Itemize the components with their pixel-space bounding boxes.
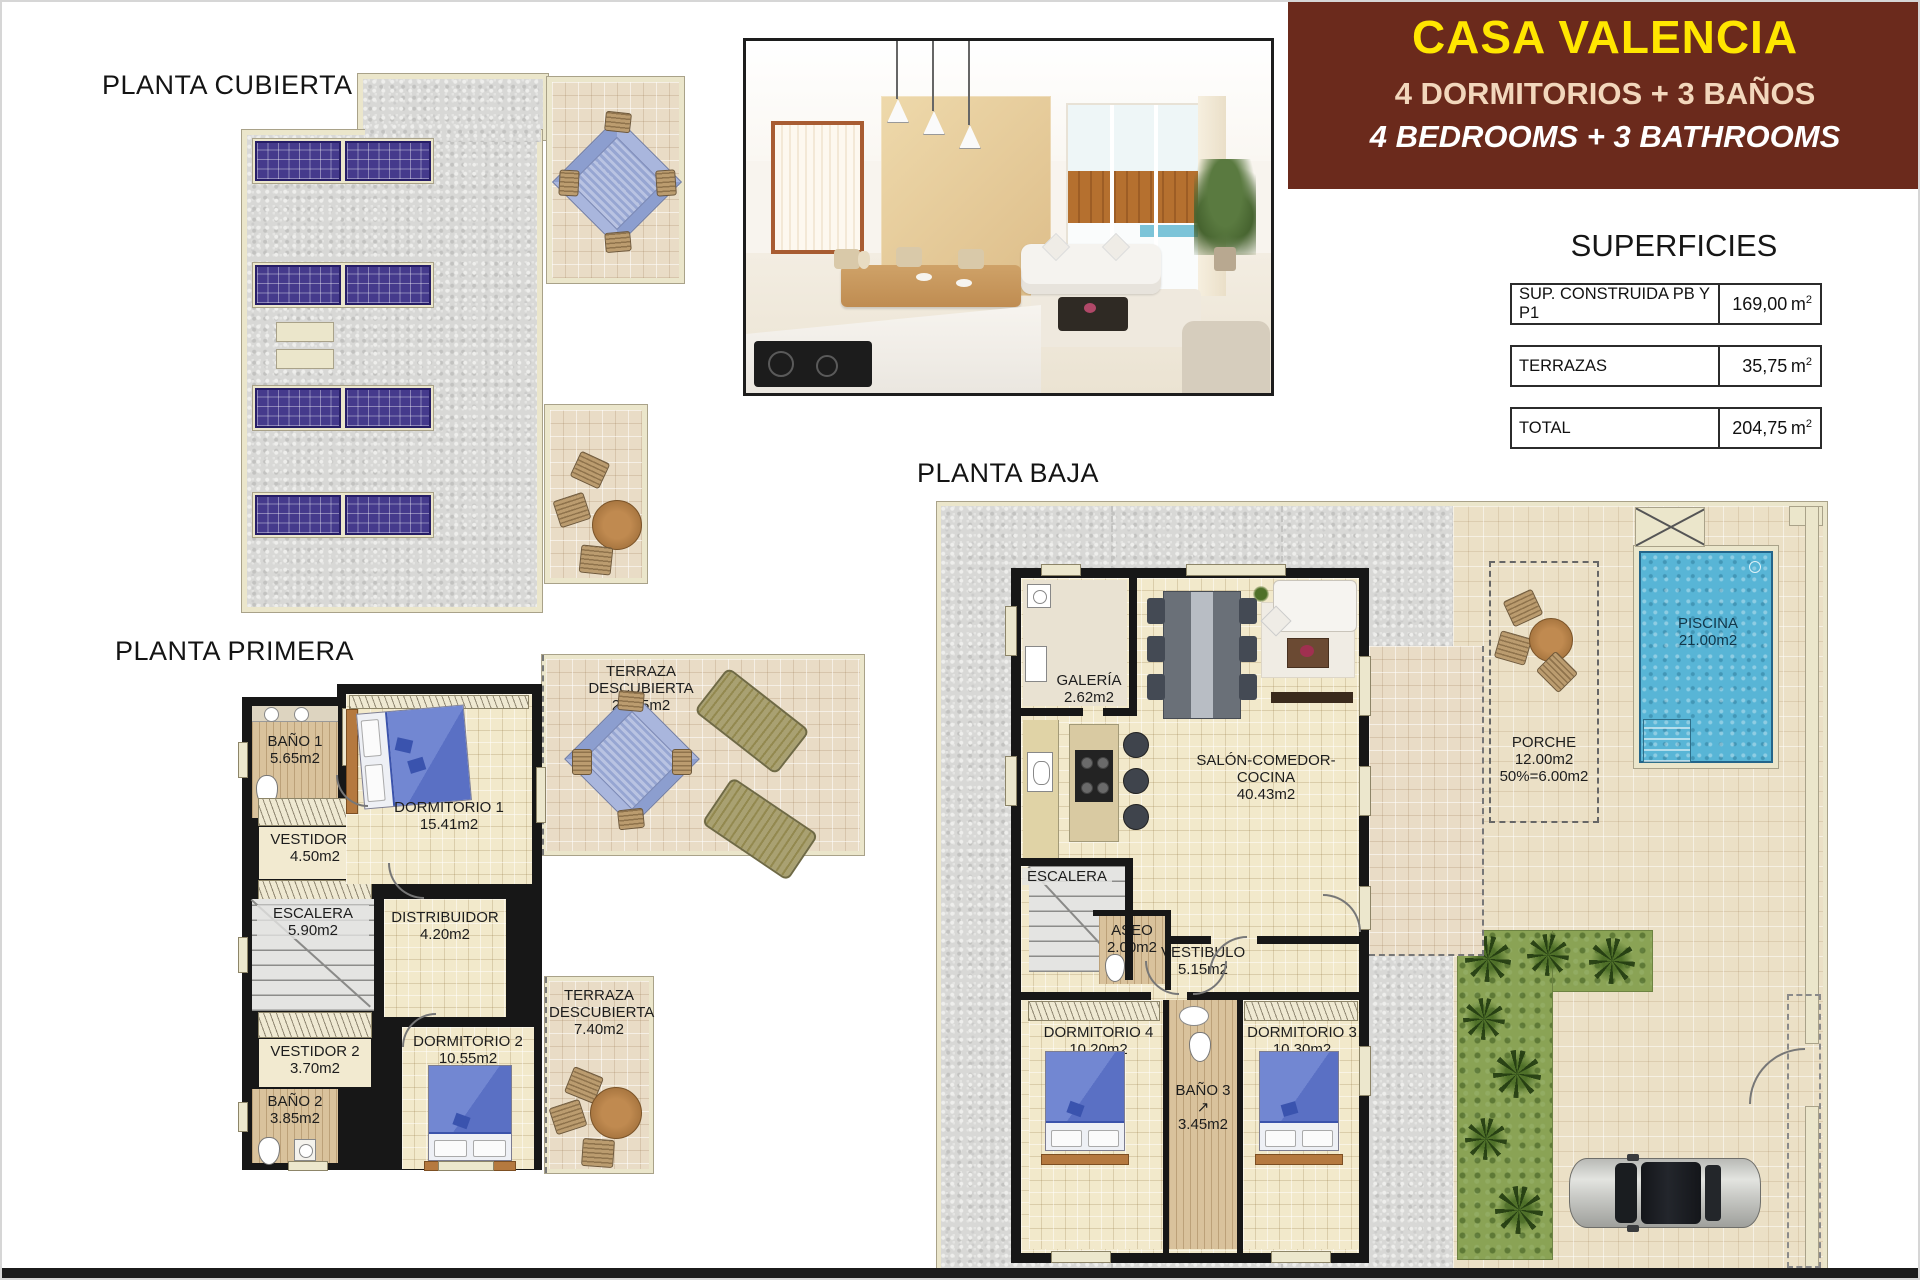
window-opening — [438, 1161, 494, 1171]
dining-chair — [1147, 636, 1165, 662]
double-bed — [356, 704, 472, 809]
round-table — [592, 500, 642, 550]
terrace-chair — [604, 231, 632, 253]
bottom-border-bar — [2, 1268, 1918, 1278]
wardrobe — [259, 1013, 371, 1037]
dining-chair — [896, 247, 922, 267]
pillow — [434, 1140, 467, 1157]
palm-plant — [1589, 938, 1635, 984]
solar-panel-row — [252, 385, 434, 431]
coffee-table — [1058, 297, 1128, 331]
sink-bowl — [1033, 761, 1050, 785]
area-unit: m2 — [1791, 356, 1812, 377]
plan-primera: TERRAZA DESCUBIERTA 28.35m2 TERRAZA DESC… — [232, 647, 872, 1179]
palm-plant — [1495, 1186, 1543, 1234]
area-value: 204,75 — [1732, 418, 1787, 439]
window-opening — [238, 937, 248, 973]
room-area: 2.62m2 — [1049, 689, 1129, 706]
washbasin — [1179, 1006, 1209, 1026]
solar-panel-row — [252, 492, 434, 538]
burner — [1081, 757, 1093, 769]
table-runner — [1191, 592, 1212, 718]
burner — [1097, 782, 1109, 794]
burner — [1097, 757, 1109, 769]
window-opening — [1041, 564, 1081, 576]
round-table — [590, 1087, 642, 1139]
dining-table — [1163, 591, 1241, 719]
room-label-escalera: ESCALERA 5.90m2 — [257, 905, 369, 939]
pillow — [1088, 1130, 1120, 1147]
superficies-title: SUPERFICIES — [1518, 228, 1830, 264]
room-area: 12.00m2 — [1491, 751, 1597, 768]
page-title: CASA VALENCIA — [1288, 10, 1920, 64]
room-name: DISTRIBUIDOR — [387, 909, 503, 926]
solar-panel-row — [252, 138, 434, 184]
terrace-chair — [572, 749, 592, 775]
roof-body — [242, 130, 542, 612]
boundary-wall — [1805, 506, 1819, 1044]
room-name: BAÑO 1 — [252, 733, 338, 750]
floorplan-sheet: CASA VALENCIA 4 DORMITORIOS + 3 BAÑOS 4 … — [0, 0, 1920, 1280]
washbasin-cabinet — [294, 1139, 316, 1161]
terrace-chair — [579, 544, 614, 575]
solar-panel-row — [252, 262, 434, 308]
area-unit: m2 — [1791, 418, 1812, 439]
foreground-chair — [1182, 321, 1270, 393]
bed-bench — [1041, 1154, 1129, 1165]
pillow — [1302, 1130, 1334, 1147]
room-area: 3.85m2 — [254, 1110, 336, 1127]
window-opening — [1005, 756, 1017, 806]
room-area-pct: 50%=6.00m2 — [1491, 768, 1597, 785]
coffee-table — [1287, 638, 1329, 668]
pendant-stem — [932, 41, 934, 111]
area-value: 169,00 — [1732, 294, 1787, 315]
plan-title-baja: PLANTA BAJA — [917, 458, 1099, 489]
room-name: SALÓN-COMEDOR-COCINA — [1176, 752, 1356, 786]
subtitle-english: 4 BEDROOMS + 3 BATHROOMS — [1288, 119, 1920, 155]
tv-sideboard — [1271, 692, 1353, 703]
room-area: 4.20m2 — [387, 926, 503, 943]
room-label-bano2: BAÑO 2 3.85m2 — [254, 1093, 336, 1127]
window-opening — [1186, 564, 1286, 576]
wardrobe — [1245, 1002, 1357, 1020]
solar-panel — [345, 141, 431, 181]
row-value: 204,75 m2 — [1718, 409, 1820, 447]
row-value: 169,00 m2 — [1718, 285, 1820, 323]
terrace-chair — [617, 690, 645, 712]
plant — [1194, 159, 1256, 255]
terrace-chair — [617, 808, 645, 831]
double-bed — [1259, 1051, 1339, 1151]
room-label-galeria: GALERÍA 2.62m2 — [1049, 672, 1129, 706]
room-name: DORMITORIO 1 — [394, 799, 504, 816]
duvet — [429, 1066, 511, 1134]
palm-plant — [1465, 1118, 1507, 1160]
bar-stool — [1123, 732, 1149, 758]
plant — [1253, 586, 1269, 602]
area-unit: m2 — [1791, 294, 1812, 315]
plan-baja: PISCINA 21.00m2 PORCHE 12.00m2 50%=6.00m… — [937, 502, 1827, 1274]
pendant-stem — [968, 41, 970, 125]
room-area: 21.00m2 — [1651, 632, 1765, 649]
burner — [1081, 782, 1093, 794]
duvet — [385, 706, 471, 806]
pillow — [361, 719, 382, 758]
room-name: TERRAZA DESCUBIERTA — [549, 987, 649, 1021]
roof-vent — [276, 322, 334, 342]
bar-stool — [1123, 768, 1149, 794]
row-label: SUP. CONSTRUIDA PB Y P1 — [1512, 285, 1718, 323]
solar-panel — [255, 495, 341, 535]
car-mirror — [1627, 1154, 1639, 1161]
kitchen-sink — [1027, 752, 1053, 792]
room-name: VESTIDOR 2 — [259, 1043, 371, 1060]
window-opening — [1271, 1251, 1331, 1263]
flowers — [1300, 645, 1314, 657]
door-opening — [1359, 656, 1371, 716]
wardrobe — [1029, 1002, 1159, 1020]
entrance-dashed — [1787, 994, 1821, 1268]
superficies-row: SUP. CONSTRUIDA PB Y P1 169,00 m2 — [1510, 283, 1822, 325]
terrace-chair — [558, 169, 579, 196]
double-bed — [428, 1065, 512, 1161]
cooktop — [1075, 750, 1113, 802]
internal-wall — [1163, 1000, 1169, 1253]
palm-plant — [1493, 1050, 1541, 1098]
terrace-chair — [581, 1138, 615, 1168]
room-label-escalera-baja: ESCALERA — [1022, 868, 1112, 885]
arrow-up-right-icon: ↗ — [1197, 1099, 1210, 1116]
terrace-boundary-dashed — [545, 977, 547, 1173]
superficies-row: TOTAL 204,75 m2 — [1510, 407, 1822, 449]
room-name: PISCINA — [1651, 615, 1765, 632]
pool-outside — [1140, 225, 1199, 237]
terrace-chair — [655, 169, 677, 196]
internal-wall — [1021, 708, 1083, 716]
car-mirror — [1627, 1225, 1639, 1232]
internal-wall — [1129, 578, 1137, 716]
room-label-salon: SALÓN-COMEDOR-COCINA 40.43m2 — [1176, 752, 1356, 803]
washbasin — [299, 1144, 313, 1158]
dining-chair — [1147, 598, 1165, 624]
area-value: 35,75 — [1742, 356, 1787, 377]
solar-panel — [255, 265, 341, 305]
subtitle-spanish: 4 DORMITORIOS + 3 BAÑOS — [1288, 76, 1920, 112]
room-name: DORMITORIO 4 — [1036, 1024, 1161, 1041]
palm-plant — [1527, 934, 1569, 976]
internal-wall — [1171, 936, 1211, 944]
terrace-chair — [672, 749, 692, 775]
pool-steps — [1643, 719, 1691, 763]
pool-skimmer — [1749, 561, 1761, 573]
table-setting — [916, 273, 932, 281]
sofa — [1021, 244, 1161, 294]
row-label: TOTAL — [1512, 419, 1718, 438]
room-label-dormitorio1: DORMITORIO 1 15.41m2 — [394, 799, 504, 833]
title-banner: CASA VALENCIA 4 DORMITORIOS + 3 BAÑOS 4 … — [1288, 2, 1920, 189]
internal-wall — [1237, 1000, 1243, 1253]
swimming-pool: PISCINA 21.00m2 — [1639, 551, 1773, 763]
door-opening — [1359, 886, 1371, 930]
internal-wall — [1021, 992, 1151, 1000]
car-roof — [1641, 1162, 1701, 1224]
window-opening — [238, 742, 248, 778]
window-opening — [1359, 1046, 1371, 1096]
room-label-bano3: BAÑO 3 ↗ 3.45m2 — [1170, 1082, 1236, 1133]
window-opening — [288, 1161, 328, 1171]
room-name: PORCHE — [1491, 734, 1597, 751]
pillow — [1265, 1130, 1297, 1147]
row-label: TERRAZAS — [1512, 357, 1718, 376]
door-opening — [1359, 766, 1371, 816]
flowers — [1084, 303, 1096, 313]
room-name: DORMITORIO 3 — [1243, 1024, 1361, 1041]
dining-chair — [1239, 636, 1257, 662]
terrace-boundary-dashed — [542, 655, 544, 855]
roof-vent — [276, 349, 334, 369]
room-label-porche: PORCHE 12.00m2 50%=6.00m2 — [1491, 734, 1597, 785]
plant-pot — [1214, 247, 1236, 271]
dining-chair — [1239, 674, 1257, 700]
room-label-distribuidor: DISTRIBUIDOR 4.20m2 — [387, 909, 503, 943]
window-opening — [1005, 606, 1017, 656]
car-windshield — [1615, 1163, 1637, 1223]
outdoor-shower-box — [1635, 507, 1705, 547]
fence-outside — [1068, 171, 1198, 223]
pendant-stem — [896, 41, 898, 99]
internal-wall — [1021, 858, 1133, 866]
internal-wall — [1093, 910, 1171, 916]
room-area: 40.43m2 — [1176, 786, 1356, 803]
internal-wall — [1257, 936, 1359, 944]
solar-panel — [255, 141, 341, 181]
room-area: 3.70m2 — [259, 1060, 371, 1077]
room-area: 15.41m2 — [394, 816, 504, 833]
room-name: GALERÍA — [1049, 672, 1129, 689]
car-rear-window — [1705, 1165, 1721, 1221]
car — [1569, 1158, 1761, 1228]
palm-plant — [1463, 998, 1505, 1040]
solar-panel — [345, 265, 431, 305]
terrace-chair — [604, 111, 632, 134]
room-area: 3.45m2 — [1170, 1116, 1236, 1133]
dining-chair — [958, 249, 984, 269]
internal-wall — [1187, 992, 1359, 1000]
room-area: 7.40m2 — [549, 1021, 649, 1038]
internal-wall — [1103, 708, 1137, 716]
room-name: BAÑO 2 — [254, 1093, 336, 1110]
internal-wall — [1125, 858, 1133, 980]
dining-chair — [1147, 674, 1165, 700]
solar-panel — [345, 388, 431, 428]
dining-chair — [1239, 598, 1257, 624]
table-setting — [956, 279, 972, 287]
double-bed — [1045, 1051, 1125, 1151]
window-opening — [1051, 1251, 1111, 1263]
room-name: ESCALERA — [1022, 868, 1112, 885]
room-label-bano1: BAÑO 1 5.65m2 — [252, 733, 338, 767]
window-opening — [536, 767, 546, 823]
washbasin — [264, 707, 279, 722]
solar-panel — [345, 495, 431, 535]
washbasin — [294, 707, 309, 722]
bar-stool — [1123, 804, 1149, 830]
room-area: 5.90m2 — [257, 922, 369, 939]
pillow — [1051, 1130, 1083, 1147]
covered-porch-floor — [1369, 646, 1484, 956]
pillow — [473, 1140, 506, 1157]
room-label-piscina: PISCINA 21.00m2 — [1651, 615, 1765, 649]
superficies-row: TERRAZAS 35,75 m2 — [1510, 345, 1822, 387]
bed-bench — [1255, 1154, 1343, 1165]
laundry-sink — [1025, 646, 1047, 682]
duvet — [1260, 1052, 1338, 1123]
plan-cubierta — [232, 60, 872, 622]
washer-drum — [1033, 590, 1047, 604]
window-opening — [238, 1102, 248, 1132]
room-name: BAÑO 3 — [1175, 1082, 1230, 1099]
solar-panel — [255, 388, 341, 428]
room-name: ESCALERA — [257, 905, 369, 922]
room-label-terraza-pequena: TERRAZA DESCUBIERTA 7.40m2 — [549, 987, 649, 1038]
duvet — [1046, 1052, 1124, 1123]
washing-machine — [1027, 584, 1051, 608]
room-area: 5.65m2 — [252, 750, 338, 767]
room-label-vestidor2: VESTIDOR 2 3.70m2 — [259, 1043, 371, 1077]
pool-deck: PISCINA 21.00m2 — [1633, 545, 1779, 769]
room-name-line: BAÑO 3 ↗ — [1170, 1082, 1236, 1116]
row-value: 35,75 m2 — [1718, 347, 1820, 385]
